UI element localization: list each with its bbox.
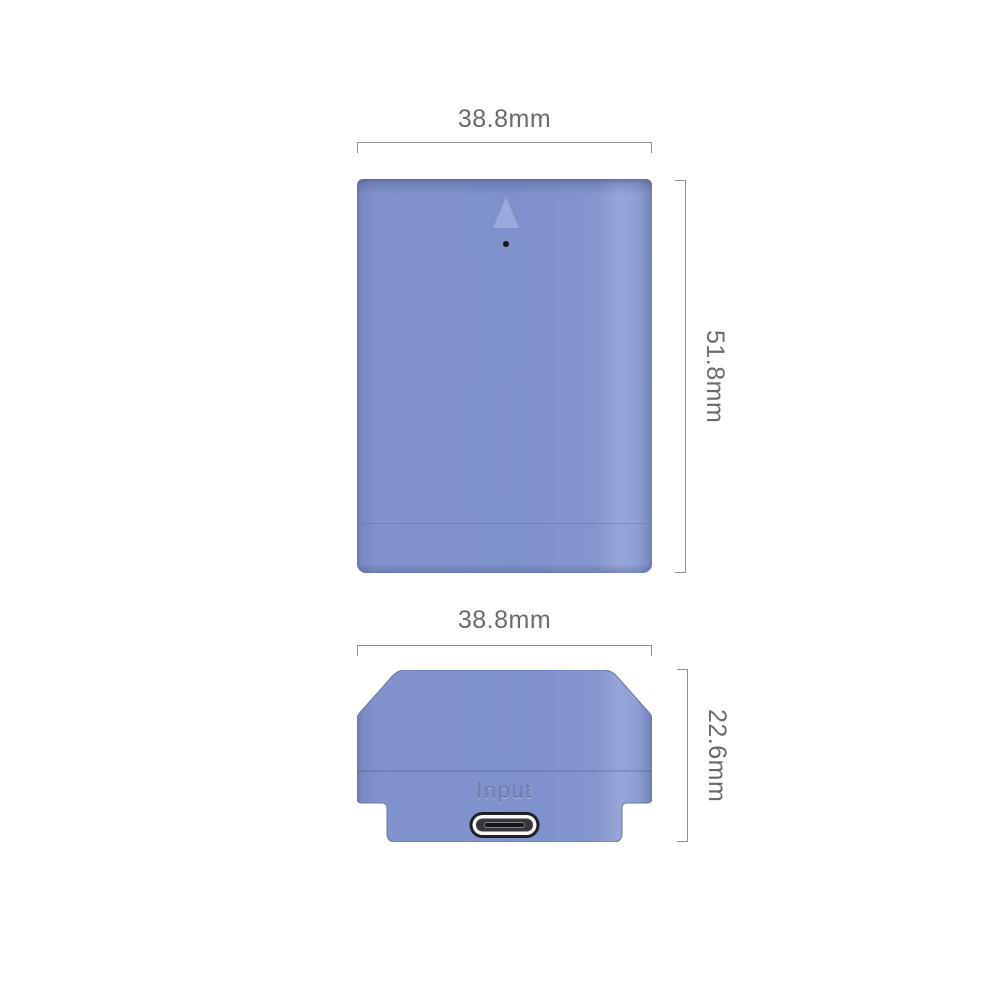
- front-view-height-label: 51.8mm: [696, 180, 730, 573]
- usb-c-port: [470, 812, 540, 838]
- usb-input-port-label: Input: [357, 778, 652, 804]
- battery-front-view: [357, 179, 652, 573]
- front-view-width-label: 38.8mm: [357, 104, 652, 134]
- battery-dimension-diagram: 38.8mm 51.8mm 38.8mm: [0, 0, 1000, 1000]
- battery-bottom-view: [357, 670, 652, 842]
- insert-direction-triangle-icon: [493, 197, 519, 228]
- alignment-dot: [503, 241, 509, 247]
- bottom-view-height-label: 22.6mm: [698, 669, 732, 842]
- front-view-width-dimension-line: [357, 142, 652, 153]
- bottom-view-width-label: 38.8mm: [357, 605, 652, 635]
- front-view-height-dimension-line: [675, 180, 686, 573]
- bottom-view-height-dimension-line: [677, 669, 688, 842]
- bottom-view-width-dimension-line: [357, 645, 652, 656]
- battery-seam-line: [362, 523, 647, 524]
